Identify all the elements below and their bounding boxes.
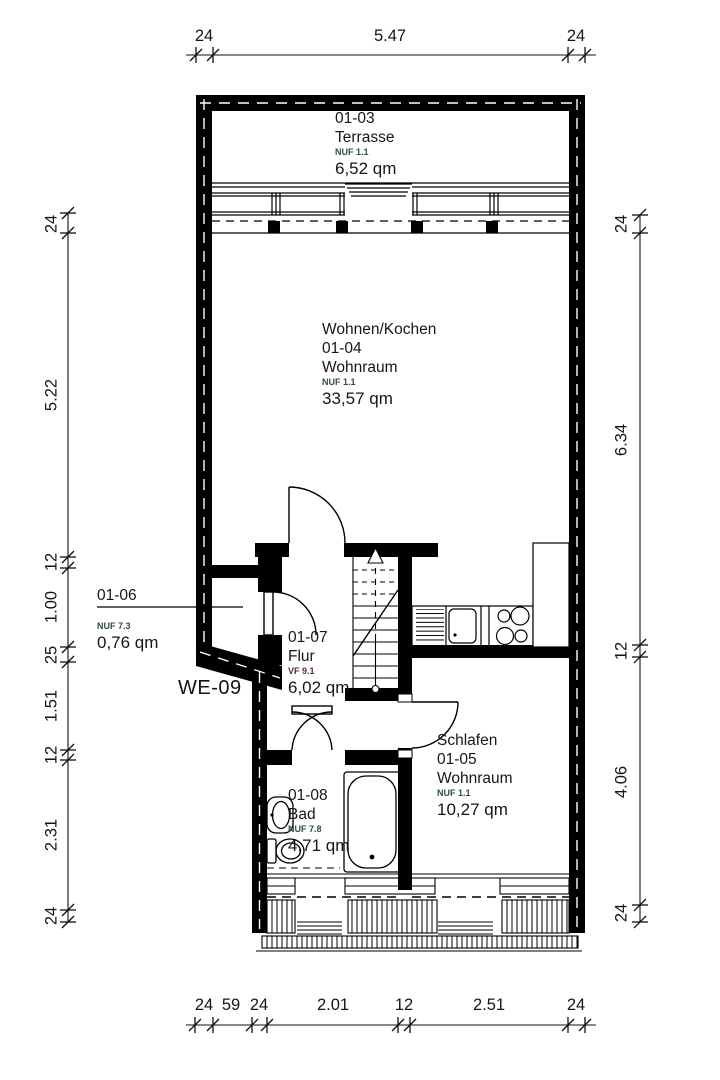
balcony-railing [256, 936, 582, 951]
dimension-lines [68, 55, 640, 1025]
terrace-facade [212, 183, 569, 233]
room-id: 01-03 [335, 109, 396, 128]
dim-left-4: 25 [43, 646, 62, 664]
dim-top-2: 24 [567, 27, 585, 46]
room-zone-abstell: NUF 7.3 [97, 621, 131, 632]
room-area-abstell: 0,76 qm [97, 632, 158, 653]
kitchen-fixtures [412, 543, 569, 647]
dim-left-8: 24 [43, 907, 62, 925]
dim-left-7: 2.31 [43, 819, 62, 851]
floorplan-canvas: 01-03 Terrasse NUF 1.1 6,52 qm Wohnen/Ko… [0, 0, 720, 1080]
room-zone: NUF 1.1 [437, 788, 513, 799]
room-zone: NUF 1.1 [322, 377, 436, 388]
dim-right-3: 4.06 [613, 766, 632, 798]
dim-right-0: 24 [613, 215, 632, 233]
dim-bottom-4: 12 [395, 996, 413, 1015]
room-area: 6,52 qm [335, 158, 396, 179]
dim-left-0: 24 [43, 215, 62, 233]
bottom-windows [267, 878, 569, 894]
room-name: Flur [288, 647, 349, 666]
room-label-terrasse: 01-03 Terrasse NUF 1.1 6,52 qm [335, 109, 396, 179]
room-title: Schlafen [437, 731, 513, 750]
room-name: Wohnraum [322, 358, 436, 377]
room-label-bad: 01-08 Bad NUF 7.8 4,71 qm [288, 786, 349, 856]
stairs [353, 548, 398, 693]
kitchen-sink [449, 609, 476, 643]
dim-left-1: 5.22 [43, 379, 62, 411]
window-hatch-bands [267, 900, 569, 933]
dim-bottom-0: 24 [195, 996, 213, 1015]
room-id: 01-08 [288, 786, 349, 805]
dim-top-0: 24 [195, 27, 213, 46]
room-area: 6,02 qm [288, 677, 349, 698]
terrace-sliding-door-icon [345, 184, 412, 196]
room-id: 01-04 [322, 339, 436, 358]
room-label-schlafen: Schlafen 01-05 Wohnraum NUF 1.1 10,27 qm [437, 731, 513, 820]
dim-left-2: 12 [43, 553, 62, 571]
door-bath [292, 706, 332, 750]
room-area: 4,71 qm [288, 835, 349, 856]
facade-posts [268, 221, 498, 233]
dim-bottom-6: 24 [567, 996, 585, 1015]
room-zone: NUF 7.8 [288, 824, 349, 835]
stair-start-circle [372, 686, 379, 693]
room-label-flur: 01-07 Flur VF 9.1 6,02 qm [288, 628, 349, 698]
bathtub-icon [344, 772, 400, 872]
room-name: Wohnraum [437, 769, 513, 788]
sink-drainer [416, 609, 444, 643]
dim-left-6: 12 [43, 746, 62, 764]
room-area: 33,57 qm [322, 388, 436, 409]
cooktop-icon [497, 607, 530, 645]
balcony-facade [256, 874, 582, 951]
room-zone: VF 9.1 [288, 666, 349, 677]
dimension-ticks [60, 47, 648, 1033]
room-id: 01-05 [437, 750, 513, 769]
room-name: Bad [288, 805, 349, 824]
dim-bottom-3: 2.01 [317, 996, 349, 1015]
room-zone: NUF 1.1 [335, 147, 396, 158]
door-living-flur [289, 487, 345, 543]
unit-label: WE-09 [178, 677, 242, 700]
dim-bottom-1: 59 [222, 996, 240, 1015]
dim-top-1: 5.47 [374, 27, 406, 46]
room-title: Wohnen/Kochen [322, 320, 436, 339]
room-id: 01-07 [288, 628, 349, 647]
dim-bottom-5: 2.51 [473, 996, 505, 1015]
kitchen-tall-unit [533, 543, 569, 647]
dim-right-4: 24 [613, 904, 632, 922]
dim-right-1: 6.34 [613, 424, 632, 456]
dim-right-2: 12 [613, 642, 632, 660]
room-id-abstell: 01-06 [97, 586, 137, 605]
room-area: 10,27 qm [437, 799, 513, 820]
dim-left-5: 1.51 [43, 690, 62, 722]
room-label-wohnen: Wohnen/Kochen 01-04 Wohnraum NUF 1.1 33,… [322, 320, 436, 409]
dim-left-3: 1.00 [43, 591, 62, 623]
room-name: Terrasse [335, 128, 396, 147]
dim-bottom-2: 24 [250, 996, 268, 1015]
